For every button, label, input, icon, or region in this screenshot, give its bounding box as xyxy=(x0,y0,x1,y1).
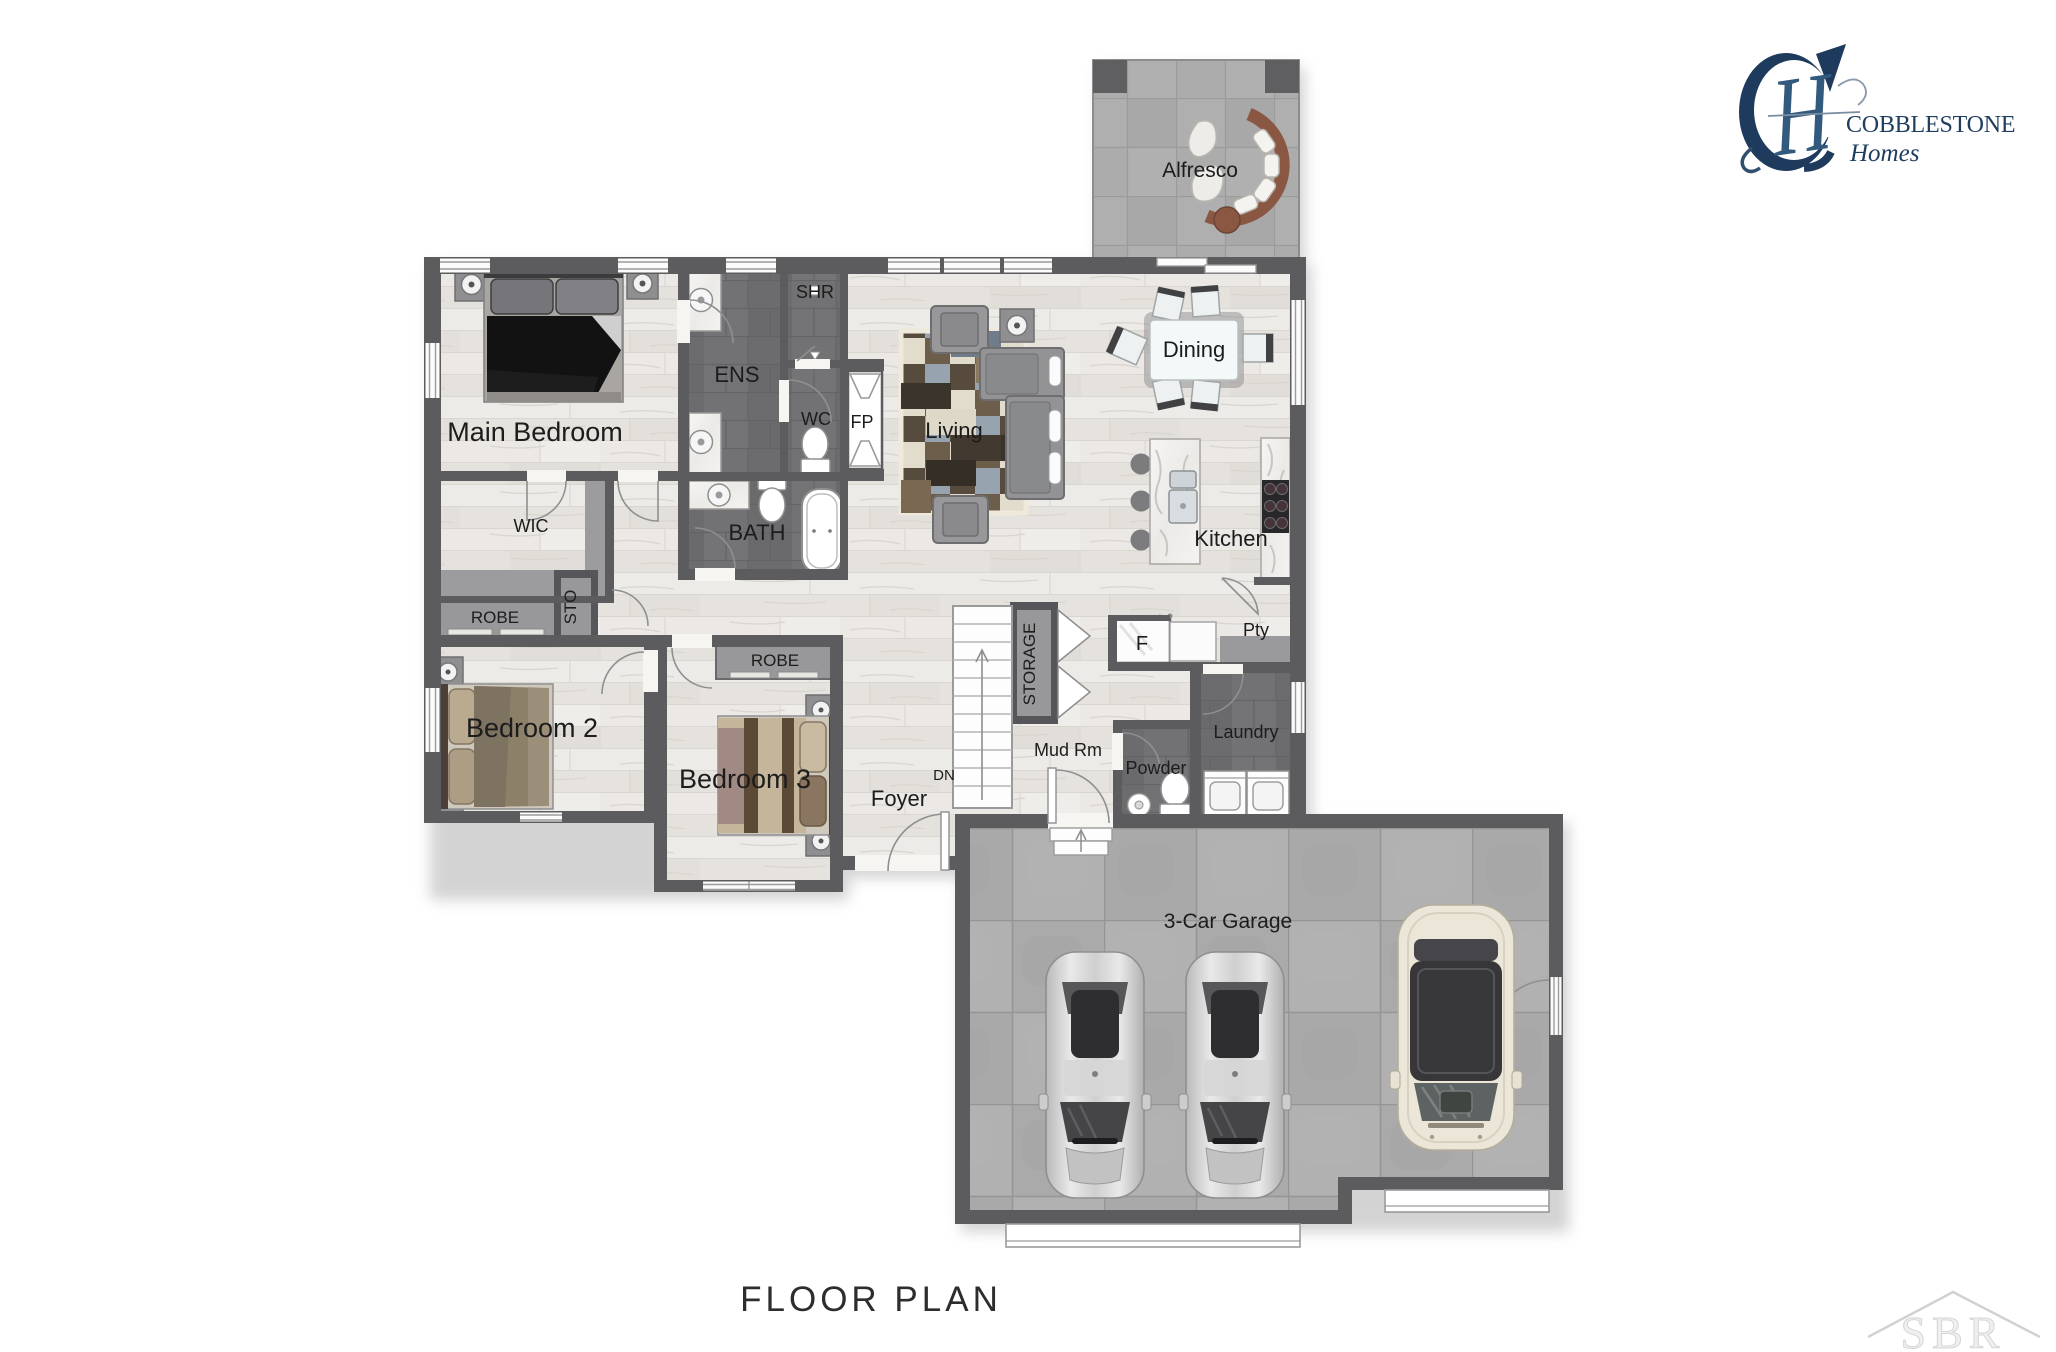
svg-text:Bedroom 3: Bedroom 3 xyxy=(679,764,811,794)
svg-text:Living: Living xyxy=(925,418,982,443)
svg-text:Mud Rm: Mud Rm xyxy=(1034,740,1102,760)
svg-text:WIC: WIC xyxy=(514,516,549,536)
svg-text:STORAGE: STORAGE xyxy=(1020,623,1039,706)
svg-text:Kitchen: Kitchen xyxy=(1194,526,1267,551)
svg-text:FP: FP xyxy=(850,412,873,432)
svg-text:Dining: Dining xyxy=(1163,337,1225,362)
svg-text:Main Bedroom: Main Bedroom xyxy=(447,417,623,447)
svg-text:Alfresco: Alfresco xyxy=(1162,159,1238,182)
svg-text:Bedroom 2: Bedroom 2 xyxy=(466,713,598,743)
svg-text:DN: DN xyxy=(933,767,955,784)
svg-text:BATH: BATH xyxy=(728,520,785,545)
svg-text:Foyer: Foyer xyxy=(871,786,927,811)
svg-text:F: F xyxy=(1136,633,1148,655)
svg-text:SHR: SHR xyxy=(796,282,834,302)
svg-text:STO: STO xyxy=(561,590,580,625)
svg-text:3-Car Garage: 3-Car Garage xyxy=(1164,910,1292,933)
svg-text:WC: WC xyxy=(801,409,831,429)
svg-text:COBBLESTONE: COBBLESTONE xyxy=(1846,112,2015,138)
svg-text:ROBE: ROBE xyxy=(471,608,519,627)
svg-text:ROBE: ROBE xyxy=(751,651,799,670)
svg-text:FLOOR PLAN: FLOOR PLAN xyxy=(740,1280,1002,1319)
svg-text:SBR: SBR xyxy=(1901,1307,2006,1352)
svg-text:Laundry: Laundry xyxy=(1213,722,1278,742)
svg-text:ENS: ENS xyxy=(714,362,759,387)
svg-text:Pty: Pty xyxy=(1243,620,1269,640)
svg-text:Homes: Homes xyxy=(1849,140,1919,167)
svg-text:Powder: Powder xyxy=(1125,758,1186,778)
